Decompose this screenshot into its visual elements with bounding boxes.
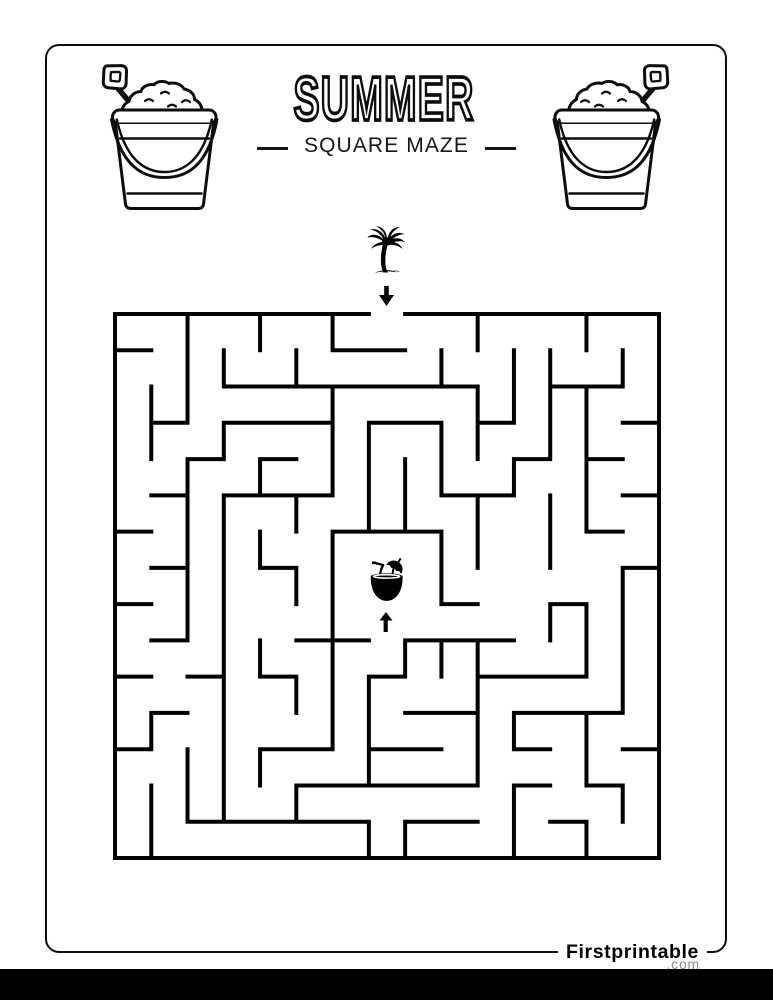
svg-text:SUMMER: SUMMER [293, 64, 474, 124]
